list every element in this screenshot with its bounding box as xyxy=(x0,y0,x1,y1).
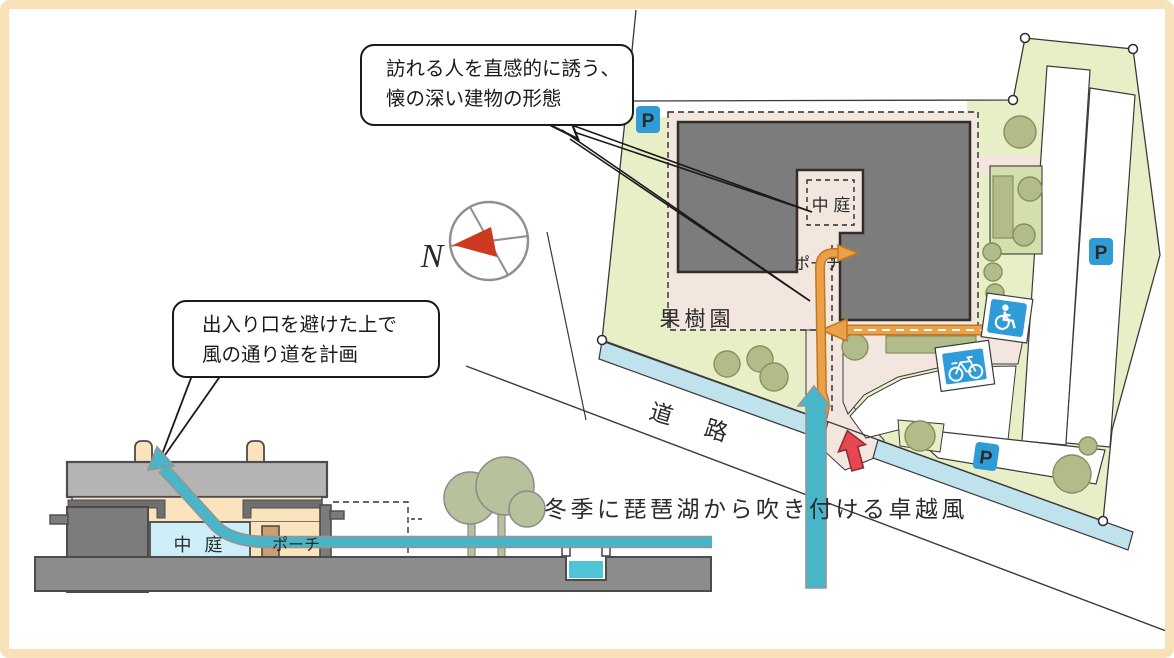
tree-icon xyxy=(1013,224,1035,246)
eave-tab-right xyxy=(330,511,344,519)
boundary-marker xyxy=(1021,34,1030,43)
callout-building-form-line1: 訪れる人を直感的に誘う、 xyxy=(386,54,632,84)
tree-icon xyxy=(905,421,935,451)
callout-building-form-line2: 懐の深い建物の形態 xyxy=(386,84,632,114)
site-wind-diagram: 中 庭 ポーチ 果樹園 道 路 xyxy=(0,0,1174,658)
tree-icon xyxy=(984,263,1002,281)
left-callout-tail xyxy=(158,365,228,465)
boundary-marker xyxy=(1129,45,1138,54)
tree-icon xyxy=(1079,437,1097,455)
hedge-vertical xyxy=(993,176,1013,238)
section-porch-label: ポーチ xyxy=(272,536,320,554)
adjacent-road-line xyxy=(547,232,586,420)
trench-water xyxy=(569,561,603,578)
callout-wind-path-line2: 風の通り道を計画 xyxy=(202,340,438,370)
eave-tab-left xyxy=(50,515,68,524)
compass-icon: N xyxy=(420,202,528,280)
svg-text:P: P xyxy=(642,111,655,132)
tree-icon xyxy=(983,243,1001,261)
wheelchair-sign xyxy=(981,293,1033,343)
roof-slab xyxy=(67,462,327,497)
callout-building-form: 訪れる人を直感的に誘う、 懐の深い建物の形態 xyxy=(360,44,634,126)
tree-icon xyxy=(714,351,740,377)
tree-icon xyxy=(1018,177,1042,201)
boundary-marker xyxy=(598,336,607,345)
tree-icon xyxy=(509,491,545,527)
section-courtyard-label: 中 庭 xyxy=(173,535,226,555)
svg-text:P: P xyxy=(1095,243,1108,264)
tree-trunk xyxy=(498,512,505,557)
callout-wind-path: 出入り口を避けた上で 風の通り道を計画 xyxy=(172,300,440,378)
bicycle-sign xyxy=(935,340,995,391)
parking-sign-2: P xyxy=(1089,238,1113,265)
ground-slab xyxy=(35,557,711,591)
orchard-label: 果樹園 xyxy=(660,308,735,331)
parking-sign-1: P xyxy=(636,106,660,133)
boundary-marker xyxy=(1009,96,1018,105)
callout-wind-path-line1: 出入り口を避けた上で xyxy=(202,310,438,340)
tree-icon xyxy=(760,363,788,391)
tree-icon xyxy=(1004,116,1036,148)
boundary-marker xyxy=(1099,517,1108,526)
tree-icon xyxy=(1053,455,1091,493)
plan-courtyard-label: 中 庭 xyxy=(812,196,851,215)
north-label: N xyxy=(420,238,446,275)
parking-sign-3: P xyxy=(972,441,1000,471)
prevailing-wind-note: 冬季に琵琶湖から吹き付ける卓越風 xyxy=(544,496,968,522)
